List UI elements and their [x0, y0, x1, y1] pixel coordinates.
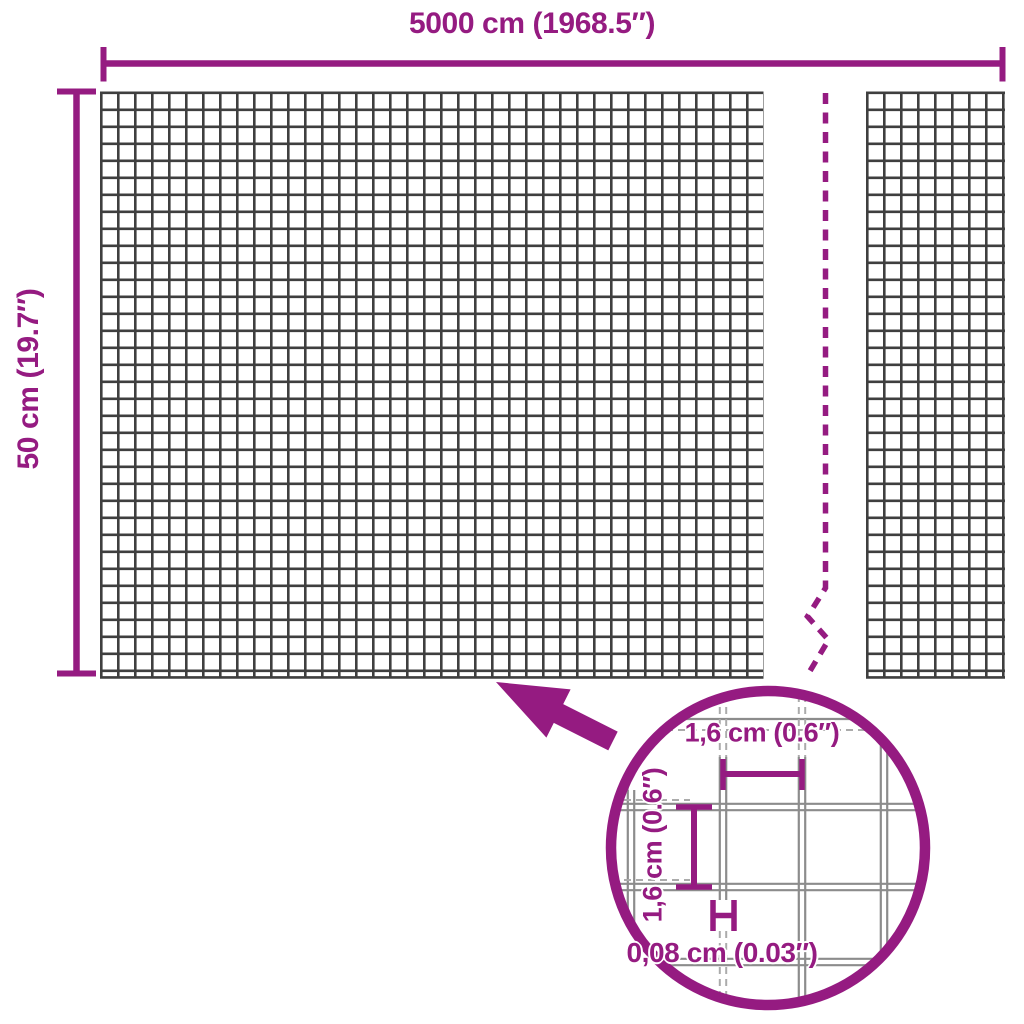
- mesh-grid-left: [100, 92, 764, 679]
- height-dimension-label: 50 cm (19.7″): [14, 289, 44, 470]
- height-dimension-line: [57, 92, 96, 674]
- mesh-height-label: 1,6 cm (0.6″): [640, 768, 667, 923]
- width-dimension-line: [103, 47, 1003, 82]
- wire-thickness-bracket: [713, 900, 734, 931]
- diagram-canvas: [0, 0, 1024, 1024]
- product-dimension-diagram: 5000 cm (1968.5″) 50 cm (19.7″) 1,6 cm (…: [0, 0, 1024, 1024]
- width-dimension-label: 5000 cm (1968.5″): [409, 9, 655, 39]
- length-break-line: [808, 93, 829, 674]
- zoom-arrow-icon: [496, 682, 618, 750]
- wire-thickness-label: 0,08 cm (0.03″): [626, 939, 817, 967]
- mesh-width-label: 1,6 cm (0.6″): [685, 720, 840, 747]
- lens-width-bracket: [723, 759, 802, 790]
- lens-height-bracket: [676, 807, 712, 887]
- mesh-grid-right: [866, 92, 1005, 679]
